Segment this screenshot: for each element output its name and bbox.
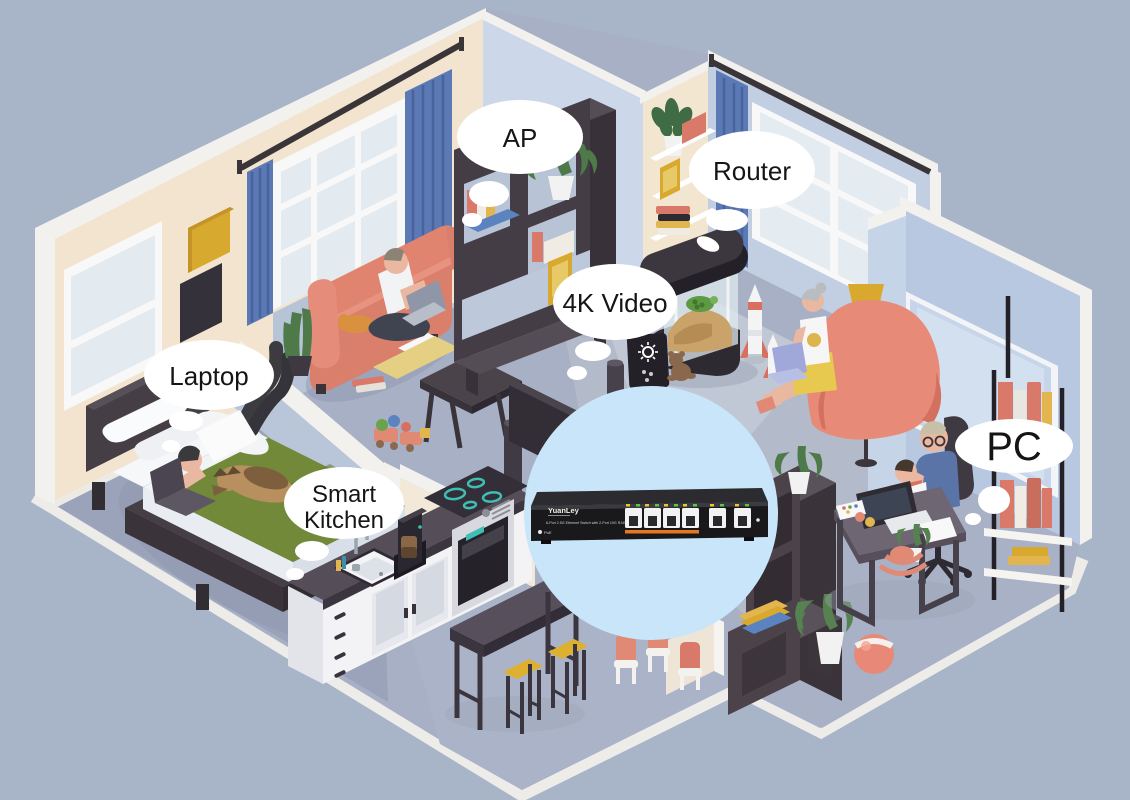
- svg-text:PoE: PoE: [544, 530, 552, 535]
- svg-text:Smart: Smart: [312, 481, 376, 508]
- svg-text:Laptop: Laptop: [169, 361, 249, 391]
- svg-text:Kitchen: Kitchen: [304, 507, 384, 534]
- svg-text:PC: PC: [986, 425, 1042, 469]
- svg-text:4K Video: 4K Video: [562, 288, 667, 318]
- svg-text:Router: Router: [713, 156, 791, 186]
- svg-text:AP: AP: [503, 123, 538, 153]
- svg-text:6-Port 2.5G Ethernet Switch wi: 6-Port 2.5G Ethernet Switch with 2-Port …: [546, 521, 626, 525]
- svg-text:YuanLey: YuanLey: [548, 506, 580, 515]
